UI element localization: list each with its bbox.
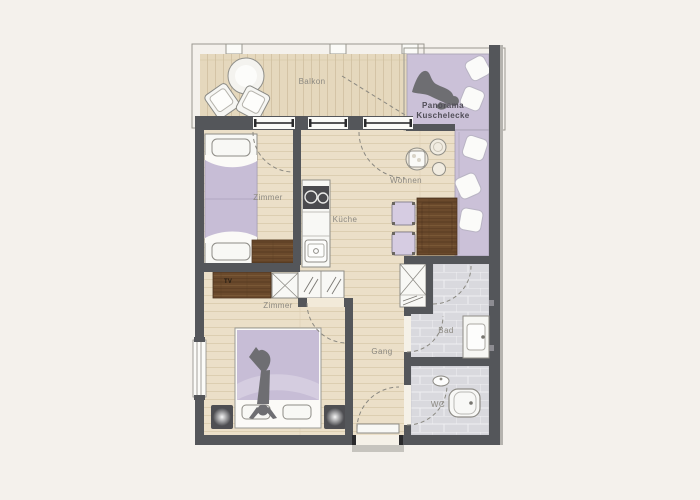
pillow <box>212 243 250 260</box>
label-kueche: Küche <box>333 215 358 224</box>
entrance-jamb <box>352 435 356 445</box>
entrance-step <box>352 445 404 452</box>
railing-post <box>330 44 346 54</box>
entrance-door-leaf <box>357 424 399 433</box>
pillow <box>212 139 250 156</box>
door-opening-bad <box>404 316 411 352</box>
pouf <box>433 163 446 176</box>
bad-floor-lower <box>411 314 435 357</box>
dining-table <box>417 198 457 255</box>
tv-sideboard <box>213 272 271 298</box>
entrance-jamb <box>399 435 403 445</box>
wall-right-edge <box>500 45 503 445</box>
label-bad: Bad <box>438 326 453 335</box>
label-panorama: Panorama <box>422 101 464 110</box>
side-table-small <box>430 139 446 155</box>
label-tv: TV <box>224 279 232 285</box>
fixed-window <box>308 117 348 129</box>
wall-closet-jog <box>426 263 433 314</box>
wall-bedrooms-divider <box>195 263 300 272</box>
side-window-left <box>193 337 206 400</box>
cup <box>412 154 416 158</box>
balcony-table-top <box>235 65 257 87</box>
kitchen <box>302 180 330 267</box>
dresser <box>252 240 298 263</box>
faucet <box>481 335 485 339</box>
wall-connector <box>404 307 433 314</box>
door-opening-bedroom <box>307 298 344 307</box>
balcony-door-window <box>253 117 295 129</box>
railing-post <box>226 44 242 54</box>
label-zimmer-upper: Zimmer <box>253 193 283 202</box>
wall-bedroom-kitchen <box>293 128 301 265</box>
bad-fixtures <box>463 316 489 358</box>
floorplan-canvas: Balkon Panorama Kuschelecke Zimmer Küche… <box>0 0 700 500</box>
dining-chair <box>392 202 415 225</box>
balcony-door-window <box>363 117 413 129</box>
hand-basin-faucet <box>440 378 443 381</box>
label-zimmer-lower: Zimmer <box>263 301 293 310</box>
balcony <box>192 44 424 128</box>
wall-door-jamb <box>298 298 307 307</box>
hand-basin <box>433 376 449 386</box>
hall-closet <box>400 264 426 307</box>
floorplan-svg: Balkon Panorama Kuschelecke Zimmer Küche… <box>0 0 700 500</box>
door-opening-wc <box>404 385 411 425</box>
entrance-opening <box>355 435 400 445</box>
balcony-floor <box>200 54 408 126</box>
lamp-glow <box>213 408 231 426</box>
wall-notch <box>489 345 494 351</box>
wall-under-kuschelecke <box>406 124 455 131</box>
stove <box>303 186 329 209</box>
label-wohnen: Wohnen <box>390 176 422 185</box>
wall-notch <box>489 300 494 306</box>
label-kuschelecke: Kuschelecke <box>416 111 469 120</box>
wall-gang-bedroom <box>345 298 353 440</box>
dining-chair <box>392 232 415 255</box>
flush-button <box>469 401 473 405</box>
pillow <box>283 405 311 419</box>
wall-door-jamb <box>344 298 353 307</box>
tray <box>409 151 425 167</box>
label-gang: Gang <box>371 347 392 356</box>
label-wc: WC <box>431 400 445 409</box>
lamp-glow <box>326 408 344 426</box>
wall-wohnen-bad <box>404 256 490 264</box>
cup <box>417 158 421 162</box>
label-balkon: Balkon <box>299 77 326 86</box>
